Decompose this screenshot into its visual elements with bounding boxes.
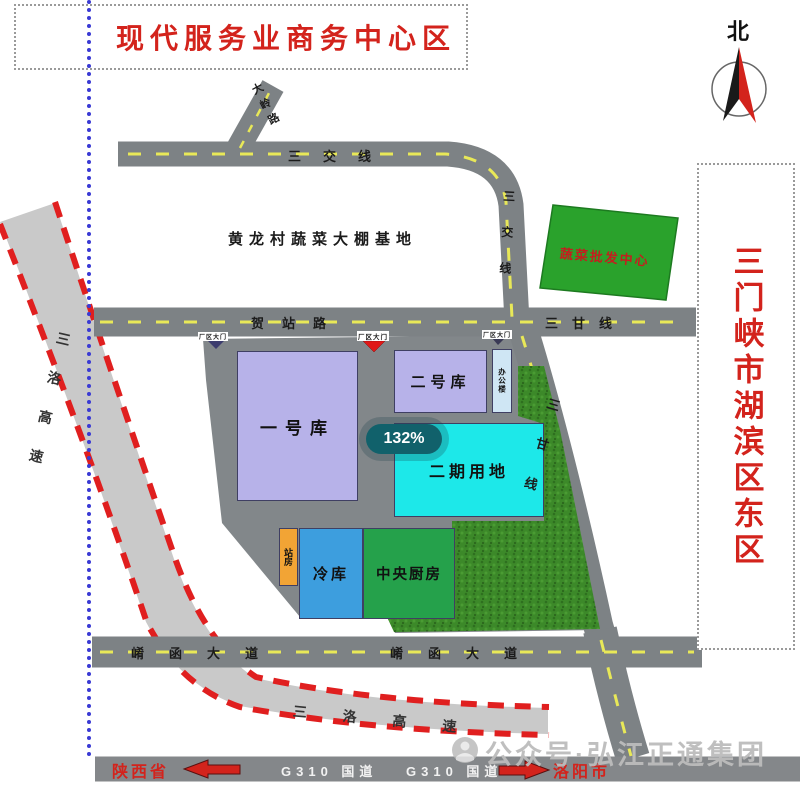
gate-label-2: 厂区大门 — [357, 331, 389, 341]
watermark-logo-icon — [452, 737, 478, 763]
warehouse-2-building: 二号库 — [394, 350, 487, 413]
warehouse-1-building: 一号库 — [237, 351, 358, 501]
greenhouse-base-label: 黄龙村蔬菜大棚基地 — [228, 228, 417, 249]
road-label-sanjiao-h: 三交线 — [288, 146, 393, 165]
boundary-dotted-line — [87, 0, 91, 757]
region-box: 三门峡市湖滨区东区 — [697, 163, 795, 650]
station-house-building: 站房 — [279, 528, 298, 586]
office-building: 办公楼 — [492, 349, 512, 413]
compass-icon — [712, 47, 766, 123]
road-label-xiaohan-right: 崤函大道 — [390, 643, 542, 662]
site-plan-map: 现代服务业商务中心区 北 三门峡市湖滨区东区 三交线 三交线 大岭路 贺站路 三… — [0, 0, 800, 785]
central-kitchen-label: 中央厨房 — [376, 563, 442, 584]
page-title: 现代服务业商务中心区 — [116, 17, 456, 57]
cold-storage-label: 冷库 — [313, 563, 349, 584]
gate-label-3: 厂区大门 — [482, 330, 512, 339]
phase-2-label: 二期用地 — [429, 458, 509, 482]
road-label-g310-left: G310 国道 — [281, 761, 377, 780]
west-direction-label: 陕西省 — [112, 758, 169, 782]
title-box: 现代服务业商务中心区 — [14, 4, 468, 70]
cold-storage-building: 冷库 — [299, 528, 363, 619]
warehouse-2-label: 二号库 — [410, 371, 470, 392]
north-label: 北 — [727, 14, 749, 46]
office-label: 办公楼 — [497, 368, 508, 394]
gate-label-1: 厂区大门 — [198, 332, 228, 341]
warehouse-1-label: 一号库 — [260, 414, 335, 439]
central-kitchen-building: 中央厨房 — [363, 528, 455, 619]
road-label-sangan-h: 三甘线 — [545, 313, 626, 332]
road-label-xiaohan-left: 崤函大道 — [131, 643, 283, 662]
watermark-text: 公众号·弘江正通集团 — [485, 733, 767, 772]
station-house-label: 站房 — [282, 548, 295, 566]
road-label-hezhan: 贺站路 — [251, 313, 344, 332]
zoom-indicator-badge: 132% — [366, 424, 442, 454]
zoom-indicator-value: 132% — [384, 430, 425, 448]
region-label: 三门峡市湖滨区东区 — [724, 245, 769, 569]
